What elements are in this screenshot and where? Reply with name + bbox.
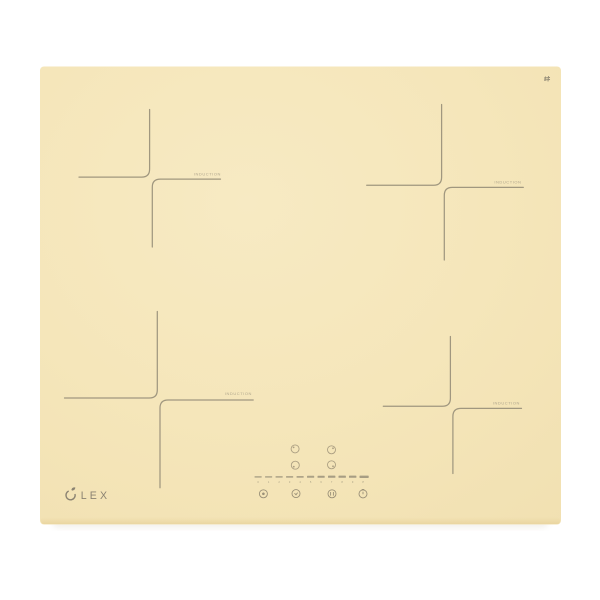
- svg-text:INDUCTION: INDUCTION: [194, 171, 221, 176]
- svg-text:INDUCTION: INDUCTION: [493, 400, 520, 405]
- svg-text:INDUCTION: INDUCTION: [225, 391, 252, 396]
- svg-text:LEX: LEX: [81, 490, 110, 502]
- svg-text:INDUCTION: INDUCTION: [494, 179, 521, 184]
- svg-text:P: P: [362, 480, 364, 484]
